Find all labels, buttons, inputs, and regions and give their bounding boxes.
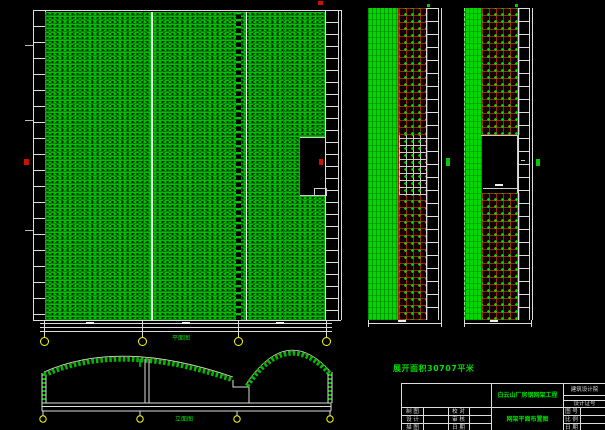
title-block: 白云山厂房钢网架工程 网架平面布置图 建筑设计院 设计证号 图 号 比 例 日 … (401, 383, 605, 430)
dimension-line (464, 323, 532, 324)
green-marker (446, 158, 450, 166)
dimension-line (40, 331, 332, 332)
strip-a-solid-band (368, 8, 398, 320)
plan-grid-line-red (283, 12, 284, 320)
grid-bubble (40, 337, 49, 346)
dimension-tick (531, 320, 532, 327)
dimension-text-mark (490, 320, 498, 322)
right-arch-red-dash (247, 352, 330, 385)
grid-bubble (137, 416, 143, 422)
plan-left-tick (25, 230, 33, 231)
plan-divider-line (151, 12, 153, 320)
grid-bubble (234, 416, 240, 422)
right-row-label: 日 期 (564, 424, 579, 430)
strip-b-outer-line (532, 8, 533, 320)
plan-grid-line-red (143, 12, 144, 320)
dimension-text-mark (398, 320, 406, 322)
strip-b-edge-ladder (518, 8, 530, 320)
grid-leader (238, 320, 239, 338)
grid-bubble (40, 416, 46, 422)
dimension-text-mark (182, 322, 190, 324)
green-marker (536, 159, 540, 166)
grid-leader (44, 320, 45, 338)
left-row-role: 描 图 (403, 424, 422, 430)
project-name: 白云山厂房钢网架工程 (492, 385, 563, 406)
left-row-role: 制 图 (403, 408, 422, 415)
red-marker (319, 159, 323, 165)
grid-bubble (327, 416, 333, 422)
left-row-check: 审 核 (449, 416, 468, 423)
area-note: 展开面积30707平米 (393, 363, 474, 374)
dimension-text-mark (276, 322, 284, 324)
dimension-text-mark (495, 184, 503, 186)
grid-leader (142, 320, 143, 338)
right-arch-truss (247, 353, 330, 386)
title-block-line (563, 395, 605, 396)
strip-a-outer-line (441, 8, 442, 320)
strip-a-hatch-bottom (398, 195, 428, 320)
strip-b-hatch-top (481, 8, 520, 135)
strip-a-edge-ladder (426, 8, 439, 320)
strip-b-opening-dim-line (483, 188, 517, 189)
grid-bubble (234, 337, 243, 346)
drawing-name: 网架平面布置图 (492, 408, 563, 430)
elevation-caption: 立面图 (175, 417, 193, 423)
plan-bottom-edge (33, 320, 341, 321)
left-row-check: 校 对 (449, 408, 468, 415)
dimension-line (368, 323, 442, 324)
org-name: 建筑设计院 (564, 385, 605, 394)
title-block-line (423, 407, 424, 430)
dimension-text-mark (86, 322, 94, 324)
dimension-tick (441, 320, 442, 327)
dimension-tick (464, 320, 465, 327)
cad-drawing-canvas: 平面图 (0, 0, 605, 430)
plan-ridge-strip (236, 12, 241, 320)
grid-leader (326, 320, 327, 338)
cert-label: 设计证号 (564, 401, 605, 407)
dimension-tick (368, 320, 369, 327)
plan-left-tick (25, 45, 33, 46)
title-block-line (469, 407, 470, 430)
title-block-line (580, 407, 581, 430)
plan-caption: 平面图 (172, 336, 190, 342)
red-marker (318, 1, 323, 5)
green-marker (427, 4, 430, 7)
strip-b-hatch-bottom (481, 193, 520, 320)
dimension-line (40, 327, 332, 328)
plan-top-edge (33, 10, 341, 11)
plan-left-tick (25, 120, 33, 121)
red-marker (24, 159, 29, 165)
plan-right-outer-line (341, 10, 342, 320)
strip-b-solid-band (464, 8, 482, 320)
plan-divider-line (246, 12, 247, 320)
right-row-label: 比 例 (564, 416, 579, 423)
strip-a-hatch-mid (398, 135, 428, 195)
grid-bubble (138, 337, 147, 346)
strip-b-opening-top-line (481, 135, 518, 136)
left-row-check: 日 期 (449, 424, 468, 430)
grid-bubble (322, 337, 331, 346)
left-row-role: 设 计 (403, 416, 422, 423)
right-row-label: 图 号 (564, 408, 579, 415)
strip-a-hatch-top (398, 8, 428, 135)
plan-right-edge-ladder (325, 10, 339, 320)
green-marker (515, 4, 518, 7)
